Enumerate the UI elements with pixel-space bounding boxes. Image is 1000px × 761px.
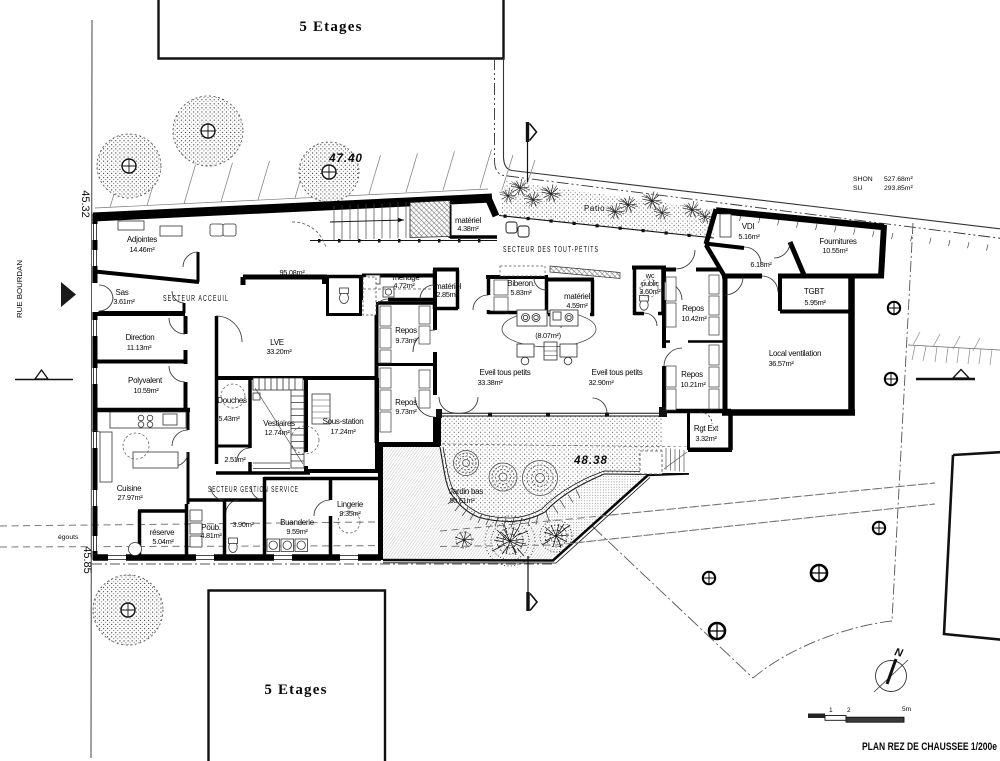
svg-text:Rgt Ext: Rgt Ext [694,424,719,433]
svg-text:3.32m²: 3.32m² [695,434,717,443]
svg-text:Eveil tous petits: Eveil tous petits [480,368,531,377]
svg-text:4.81m²: 4.81m² [200,531,222,540]
svg-text:2.51m²: 2.51m² [224,455,246,464]
svg-text:10.55m²: 10.55m² [822,246,848,255]
svg-text:RUE BOURDAN: RUE BOURDAN [15,260,24,318]
svg-text:9.73m²: 9.73m² [395,336,417,345]
svg-text:527.68m²: 527.68m² [884,176,913,183]
svg-text:3.61m²: 3.61m² [113,297,135,306]
svg-text:Buanderie: Buanderie [280,518,315,527]
svg-text:33.38m²: 33.38m² [477,378,503,387]
svg-text:SECTEUR ACCEUIL: SECTEUR ACCEUIL [163,294,229,303]
svg-text:45.85: 45.85 [81,546,93,574]
svg-text:1: 1 [829,707,833,714]
svg-text:10.59m²: 10.59m² [133,386,159,395]
svg-text:Repos: Repos [681,370,703,379]
svg-text:2.85m²: 2.85m² [436,290,458,299]
svg-text:Eveil tous petits: Eveil tous petits [592,368,643,377]
svg-text:48.38: 48.38 [573,455,608,467]
svg-text:Fournitures: Fournitures [819,237,856,246]
svg-text:Patio: Patio [584,204,605,213]
svg-text:33.20m²: 33.20m² [266,347,292,356]
svg-text:9.35m²: 9.35m² [339,509,361,518]
svg-text:45.32: 45.32 [79,190,91,218]
svg-text:égouts: égouts [58,534,79,541]
svg-text:5 Etages: 5 Etages [264,682,327,698]
svg-text:Vestiaires: Vestiaires [263,419,295,428]
svg-text:Repos: Repos [682,304,704,313]
svg-text:Repos: Repos [395,326,417,335]
svg-text:9.73m²: 9.73m² [395,407,417,416]
svg-text:Adjointes: Adjointes [127,235,158,244]
svg-text:12.74m²: 12.74m² [264,428,290,437]
svg-text:Sas: Sas [116,288,129,297]
svg-text:Douches: Douches [217,396,247,405]
svg-text:293.85m²: 293.85m² [884,185,913,192]
svg-text:5m: 5m [902,706,911,713]
svg-text:Polyvalent: Polyvalent [128,376,163,385]
svg-text:réserve: réserve [150,528,175,537]
svg-text:10.42m²: 10.42m² [681,314,707,323]
svg-text:Sous-station: Sous-station [323,417,364,426]
svg-text:10.21m²: 10.21m² [680,380,706,389]
svg-text:5 Etages: 5 Etages [299,19,362,35]
svg-text:SECTEUR GESTION SERVICE: SECTEUR GESTION SERVICE [208,485,299,494]
svg-text:Direction: Direction [126,333,155,342]
svg-text:TGBT: TGBT [804,287,825,296]
svg-text:SECTEUR DES TOUT-PETITS: SECTEUR DES TOUT-PETITS [503,245,599,254]
svg-text:9.59m²: 9.59m² [286,527,308,536]
svg-text:4.59m²: 4.59m² [566,301,588,310]
svg-text:4.38m²: 4.38m² [457,224,479,233]
svg-text:95.08m²: 95.08m² [279,268,305,277]
svg-text:4.72m²: 4.72m² [393,281,415,290]
svg-text:17.24m²: 17.24m² [330,427,356,436]
svg-text:SHON: SHON [853,176,873,183]
svg-text:Cuisine: Cuisine [117,484,142,493]
svg-text:36.57m²: 36.57m² [768,359,794,368]
svg-text:VDI: VDI [742,222,755,231]
svg-text:32.90m²: 32.90m² [588,378,614,387]
svg-text:14.46m²: 14.46m² [129,245,155,254]
svg-text:Biberon.: Biberon. [507,279,534,288]
svg-text:27.97m²: 27.97m² [117,493,143,502]
svg-text:11.13m²: 11.13m² [127,343,152,352]
svg-text:5.16m²: 5.16m² [738,232,760,241]
svg-text:Lingerie: Lingerie [337,500,364,509]
svg-text:2: 2 [847,707,851,714]
svg-text:3.60m²: 3.60m² [639,287,661,296]
svg-text:5.43m²: 5.43m² [218,414,240,423]
svg-text:5.83m²: 5.83m² [510,288,532,297]
svg-text:Jardin bas: Jardin bas [449,487,483,496]
svg-text:47.40: 47.40 [328,153,363,165]
svg-text:matériel: matériel [564,292,591,301]
svg-text:3.90m²: 3.90m² [232,520,254,529]
svg-text:PLAN REZ DE CHAUSSEE 1/200e: PLAN REZ DE CHAUSSEE 1/200e [862,741,997,753]
svg-text:5.04m²: 5.04m² [152,537,174,546]
svg-text:Repos: Repos [395,398,417,407]
svg-text:SU: SU [853,185,863,192]
svg-text:6.18m²: 6.18m² [750,260,772,269]
svg-text:Local ventilation: Local ventilation [769,349,821,358]
svg-text:5.95m²: 5.95m² [804,298,826,307]
svg-text:LVE: LVE [270,338,284,347]
svg-text:(8.07m²): (8.07m²) [535,331,561,340]
svg-text:50.61m²: 50.61m² [449,496,475,505]
